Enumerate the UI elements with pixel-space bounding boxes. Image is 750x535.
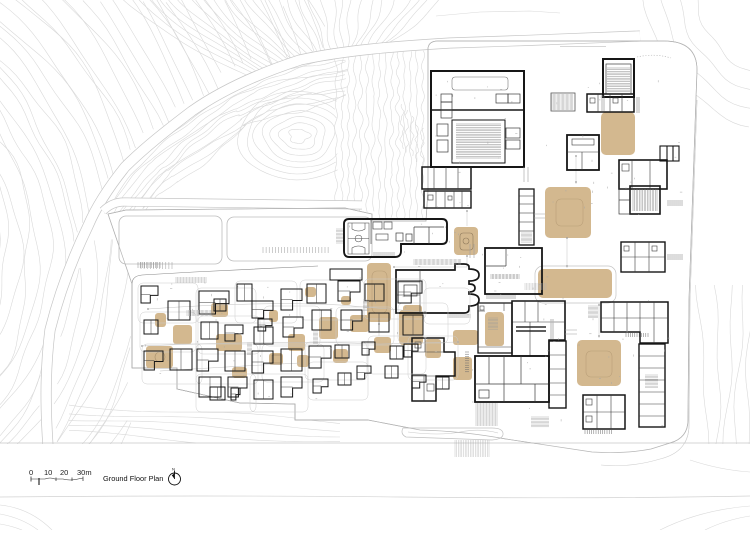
svg-text:N: N <box>172 467 175 472</box>
svg-text:30m: 30m <box>77 468 92 477</box>
svg-text:0: 0 <box>29 468 33 477</box>
svg-text:10: 10 <box>44 468 52 477</box>
svg-text:20: 20 <box>60 468 68 477</box>
svg-text:Ground Floor Plan: Ground Floor Plan <box>103 474 163 483</box>
